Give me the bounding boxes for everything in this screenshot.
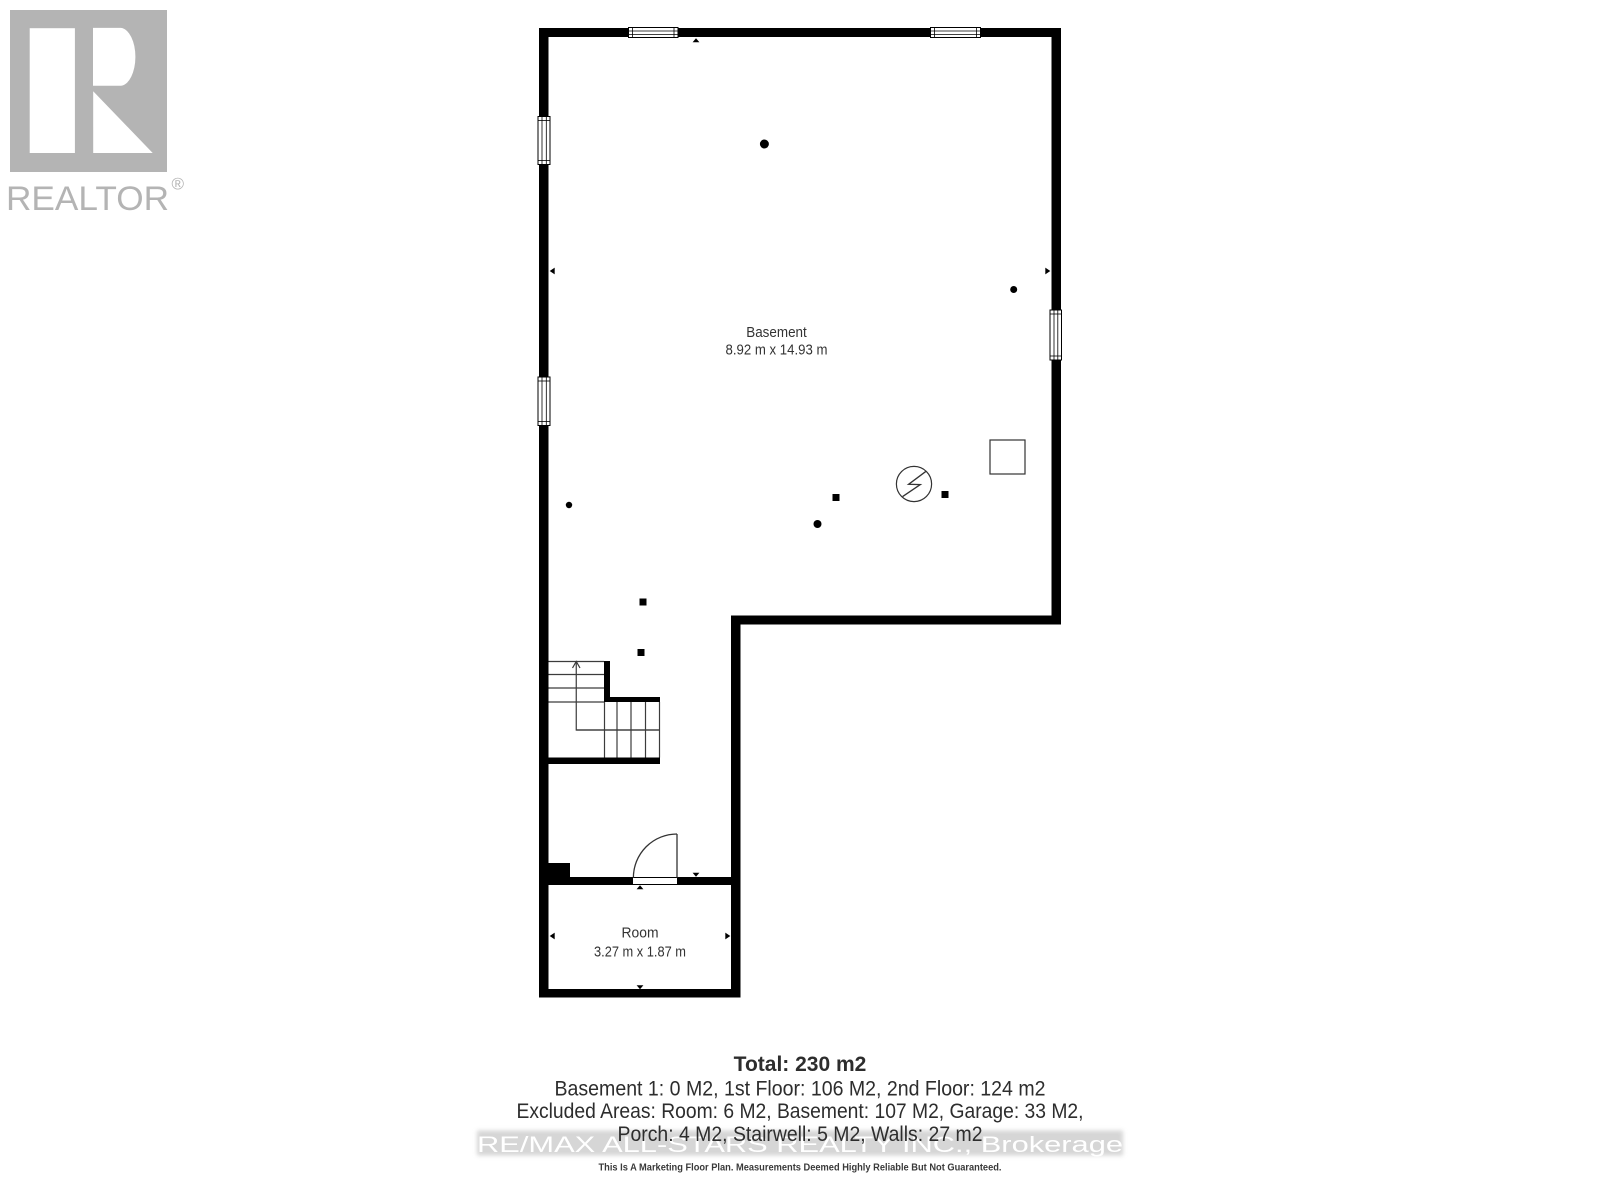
svg-text:REALTOR: REALTOR bbox=[6, 180, 169, 218]
svg-text:Porch: 4 M2, Stairwell: 5 M2,: Porch: 4 M2, Stairwell: 5 M2, Walls: 27 … bbox=[618, 1123, 983, 1146]
svg-text:Room: Room bbox=[622, 926, 659, 942]
svg-text:Excluded Areas: Room: 6 M2, Ba: Excluded Areas: Room: 6 M2, Basement: 10… bbox=[517, 1100, 1084, 1123]
svg-text:Basement 1: 0 M2, 1st Floor: 1: Basement 1: 0 M2, 1st Floor: 106 M2, 2nd… bbox=[555, 1078, 1046, 1101]
svg-text:3.27 m x 1.87 m: 3.27 m x 1.87 m bbox=[594, 945, 686, 961]
svg-text:8.92 m x 14.93 m: 8.92 m x 14.93 m bbox=[726, 343, 828, 359]
svg-text:Total: 230 m2: Total: 230 m2 bbox=[734, 1053, 867, 1076]
svg-text:This Is A Marketing Floor Plan: This Is A Marketing Floor Plan. Measurem… bbox=[599, 1163, 1002, 1174]
svg-text:®: ® bbox=[172, 175, 185, 194]
svg-text:Basement: Basement bbox=[746, 325, 807, 341]
